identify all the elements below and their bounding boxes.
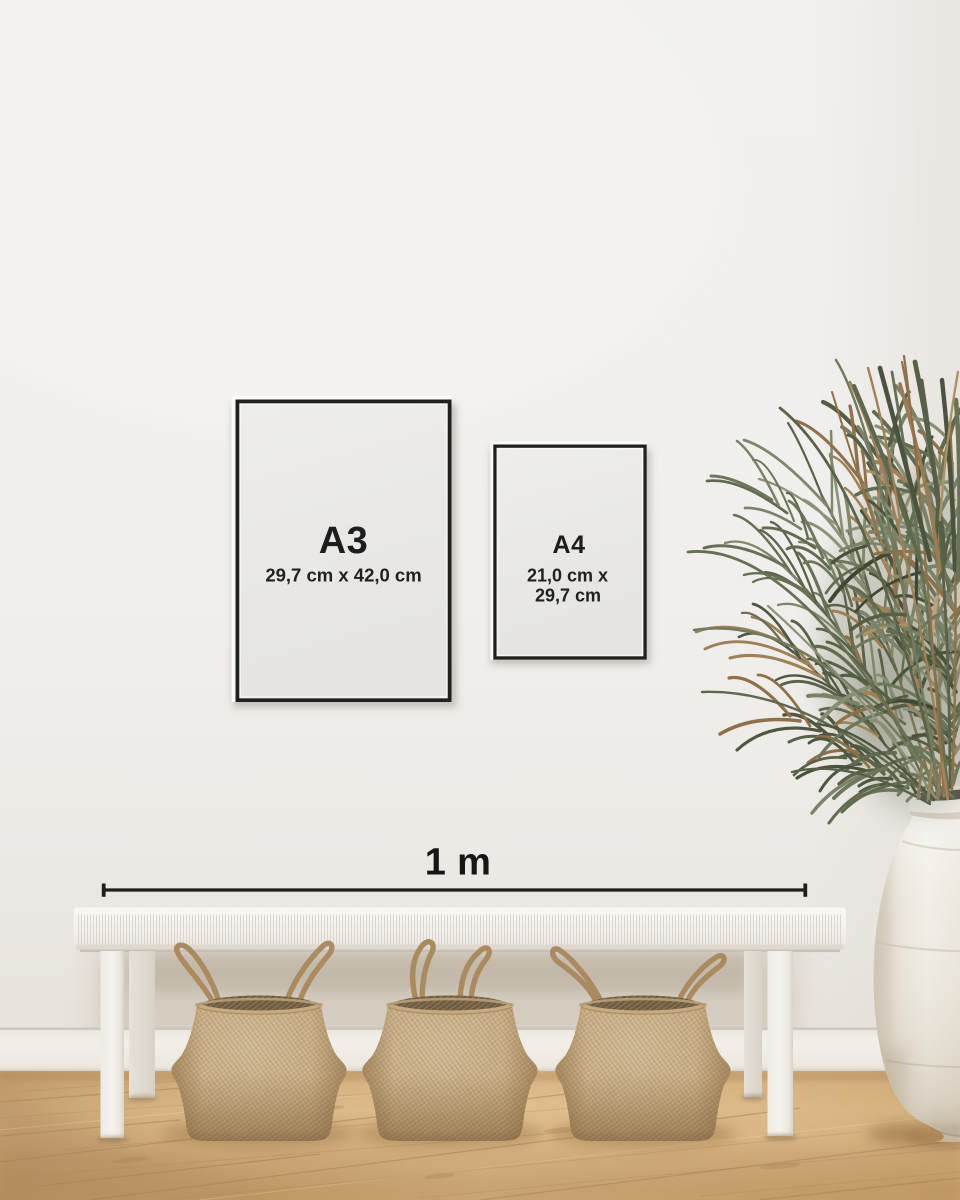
svg-text:29,7 cm x 42,0 cm: 29,7 cm x 42,0 cm bbox=[265, 565, 421, 586]
svg-text:21,0 cm x: 21,0 cm x bbox=[527, 566, 608, 586]
svg-text:1 m: 1 m bbox=[425, 842, 491, 884]
svg-text:A3: A3 bbox=[319, 520, 369, 562]
svg-text:A4: A4 bbox=[553, 531, 586, 559]
svg-text:29,7 cm: 29,7 cm bbox=[535, 586, 601, 606]
